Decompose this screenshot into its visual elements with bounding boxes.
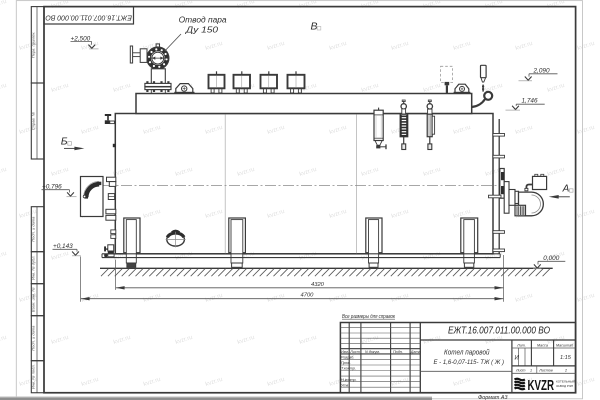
svg-text:Отвод пара: Отвод пара (179, 16, 228, 25)
svg-text:ЕЖТ.16.007.011.00.000 ВО: ЕЖТ.16.007.011.00.000 ВО (448, 326, 550, 337)
svg-text:Масса: Масса (537, 344, 548, 348)
svg-text:Б: Б (61, 136, 68, 148)
svg-text:Т.контр.: Т.контр. (341, 367, 356, 371)
svg-text:Котел паровой: Котел паровой (444, 348, 490, 357)
svg-text:Пров.: Пров. (341, 361, 351, 365)
svg-text:ЕЖТ.16.007.011.00.000 ВО: ЕЖТ.16.007.011.00.000 ВО (45, 13, 132, 20)
svg-text:ЗАВОД РЭП: ЗАВОД РЭП (556, 384, 573, 388)
svg-text:2: 2 (564, 369, 567, 373)
svg-text:Листов: Листов (538, 369, 553, 373)
svg-text:И: И (515, 356, 520, 362)
svg-text:Подп. и дата: Подп. и дата (31, 325, 36, 351)
svg-text:Н.контр.: Н.контр. (341, 378, 357, 382)
svg-text:Подп. и дата: Подп. и дата (31, 216, 36, 242)
svg-text:Инв. № дубл.: Инв. № дубл. (31, 255, 36, 280)
svg-text:Дата: Дата (410, 350, 421, 354)
svg-text:Подп.: Подп. (393, 350, 403, 354)
svg-text:Ду 150: Ду 150 (185, 26, 219, 35)
svg-text:Масштаб: Масштаб (556, 344, 574, 348)
svg-text:В: В (311, 21, 318, 33)
svg-text:Инв. № подл.: Инв. № подл. (31, 364, 36, 389)
svg-text:KVZR: KVZR (528, 378, 555, 394)
svg-text:0,000: 0,000 (543, 255, 559, 262)
svg-text:2,090: 2,090 (533, 67, 550, 74)
svg-text:Справ. №: Справ. № (31, 111, 36, 130)
svg-text:Утв.: Утв. (341, 383, 349, 387)
svg-text:Все размеры для справок: Все размеры для справок (342, 314, 396, 320)
svg-text:Е - 1,6-0,07-115- ТЖ ( Ж ): Е - 1,6-0,07-115- ТЖ ( Ж ) (434, 359, 505, 366)
svg-text:Разраб.: Разраб. (341, 356, 354, 360)
svg-text:Лист: Лист (515, 369, 526, 373)
svg-text:Лист: Лист (349, 350, 360, 354)
svg-text:Изм.: Изм. (341, 350, 349, 354)
svg-text:Перв. примен.: Перв. примен. (31, 32, 36, 59)
svg-text:1,746: 1,746 (522, 97, 538, 104)
svg-text:4700: 4700 (301, 293, 315, 299)
svg-text:+0,796: +0,796 (42, 183, 62, 190)
svg-text:А: А (562, 183, 570, 194)
svg-text:1:15: 1:15 (560, 355, 572, 361)
svg-text:КОТЕЛЬНЫЙ: КОТЕЛЬНЫЙ (556, 379, 575, 383)
svg-text:N докум.: N докум. (365, 350, 380, 354)
svg-text:4320: 4320 (311, 282, 325, 288)
svg-text:Лит.: Лит. (516, 344, 526, 348)
svg-text:Формат А3: Формат А3 (478, 395, 508, 400)
svg-text:Взам. инв. №: Взам. инв. № (31, 287, 36, 312)
svg-text:1: 1 (530, 369, 532, 373)
